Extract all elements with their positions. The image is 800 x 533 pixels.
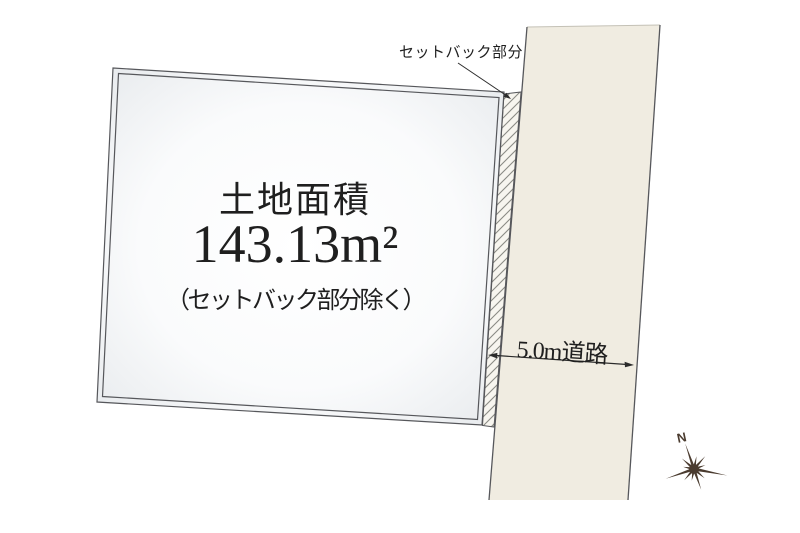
- compass-north-icon: [666, 444, 728, 490]
- area-value: 143.13m²: [60, 213, 530, 275]
- road-width-label: 5.0m道路: [516, 329, 609, 370]
- land-plot-diagram: セットバック部分 土地面積 143.13m² （セットバック部分除く） 5.0m…: [0, 0, 800, 533]
- area-note: （セットバック部分除く）: [60, 280, 530, 315]
- area-text-block: 土地面積 143.13m² （セットバック部分除く）: [60, 0, 530, 533]
